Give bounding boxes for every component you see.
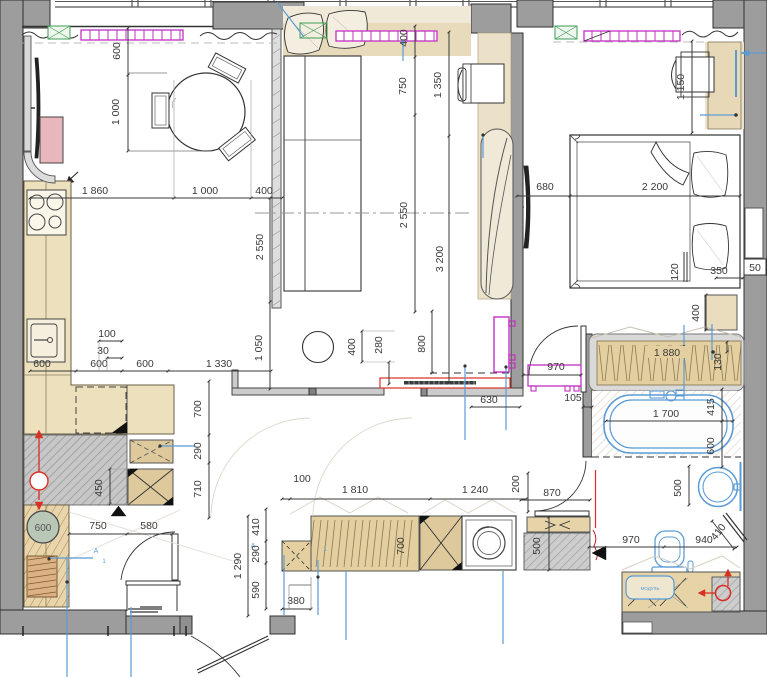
svg-text:1 350: 1 350 — [432, 72, 444, 98]
svg-text:380: 380 — [287, 595, 305, 607]
svg-text:290: 290 — [250, 545, 262, 563]
svg-text:750: 750 — [89, 520, 107, 532]
svg-text:970: 970 — [547, 361, 565, 373]
svg-text:1 330: 1 330 — [206, 358, 232, 370]
svg-text:800: 800 — [416, 335, 428, 353]
svg-text:290: 290 — [192, 442, 204, 460]
svg-text:630: 630 — [480, 394, 498, 406]
svg-text:МОДУЛЬ: МОДУЛЬ — [641, 586, 660, 591]
svg-text:100: 100 — [293, 473, 311, 485]
svg-text:120: 120 — [669, 263, 681, 281]
svg-text:970: 970 — [622, 534, 640, 546]
svg-text:590: 590 — [250, 581, 262, 599]
svg-text:600: 600 — [136, 358, 154, 370]
svg-text:1 290: 1 290 — [232, 553, 244, 579]
svg-text:1 000: 1 000 — [110, 99, 122, 125]
svg-text:600: 600 — [33, 358, 51, 370]
svg-text:600: 600 — [111, 42, 123, 60]
svg-text:710: 710 — [192, 480, 204, 498]
svg-text:415: 415 — [705, 398, 717, 416]
svg-text:350: 350 — [710, 265, 728, 277]
svg-text:500: 500 — [672, 479, 684, 497]
svg-text:580: 580 — [140, 520, 158, 532]
svg-text:1 700: 1 700 — [653, 408, 679, 420]
svg-text:680: 680 — [536, 181, 554, 193]
svg-text:600: 600 — [705, 437, 717, 455]
svg-text:2 200: 2 200 — [642, 181, 668, 193]
svg-text:1 150: 1 150 — [675, 74, 687, 100]
svg-text:400: 400 — [690, 304, 702, 322]
svg-text:130: 130 — [712, 353, 724, 371]
svg-text:3 200: 3 200 — [434, 246, 446, 272]
svg-text:700: 700 — [192, 400, 204, 418]
svg-text:940: 940 — [695, 534, 713, 546]
svg-text:А: А — [94, 548, 99, 555]
svg-text:100: 100 — [98, 328, 116, 340]
svg-text:410: 410 — [250, 518, 262, 536]
svg-text:280: 280 — [373, 336, 385, 354]
svg-text:1 860: 1 860 — [82, 185, 108, 197]
svg-text:1 050: 1 050 — [253, 335, 265, 361]
svg-text:400: 400 — [346, 338, 358, 356]
svg-text:1 880: 1 880 — [654, 347, 680, 359]
svg-text:870: 870 — [543, 487, 561, 499]
svg-text:400: 400 — [398, 29, 410, 47]
svg-text:400: 400 — [255, 185, 273, 197]
svg-text:750: 750 — [397, 77, 409, 95]
svg-text:2 550: 2 550 — [398, 202, 410, 228]
svg-text:1 810: 1 810 — [342, 484, 368, 496]
svg-text:1 000: 1 000 — [192, 185, 218, 197]
svg-text:200: 200 — [510, 475, 522, 493]
svg-text:50: 50 — [749, 262, 761, 274]
svg-text:600: 600 — [35, 523, 52, 534]
svg-text:450: 450 — [93, 479, 105, 497]
svg-text:1 240: 1 240 — [462, 484, 488, 496]
svg-text:2 550: 2 550 — [254, 234, 266, 260]
svg-text:105: 105 — [564, 392, 582, 404]
svg-text:500: 500 — [531, 537, 543, 555]
svg-text:700: 700 — [395, 537, 407, 555]
